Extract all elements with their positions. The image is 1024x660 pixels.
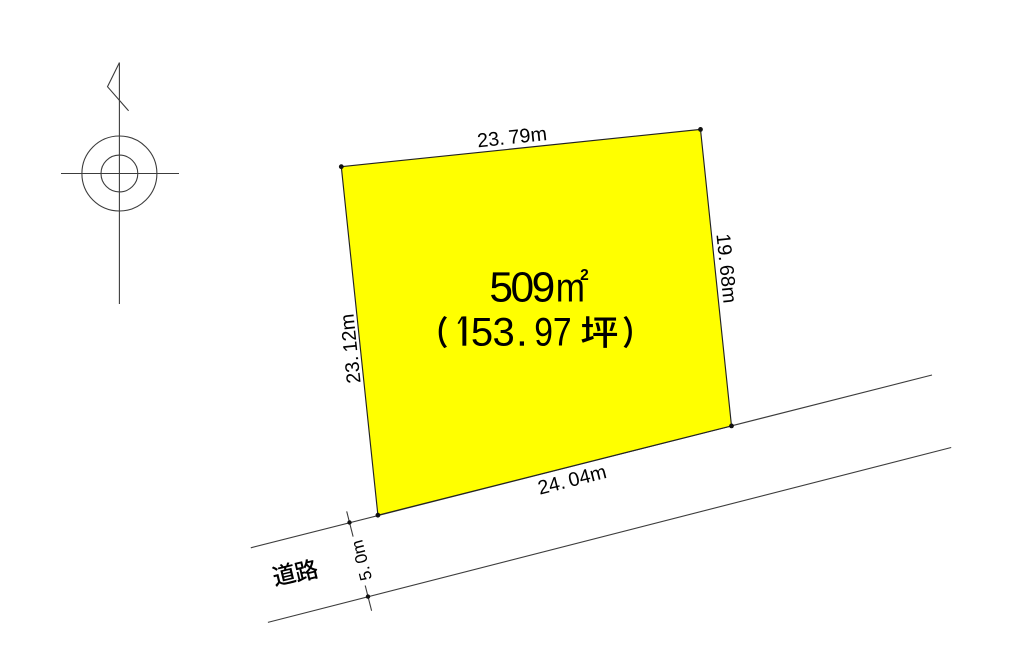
svg-text:2: 2 (580, 267, 589, 284)
svg-text:53: 53 (471, 311, 514, 355)
svg-text:97: 97 (534, 311, 572, 355)
svg-text:509: 509 (489, 265, 553, 312)
svg-text:5.0m: 5.0m (347, 538, 376, 583)
